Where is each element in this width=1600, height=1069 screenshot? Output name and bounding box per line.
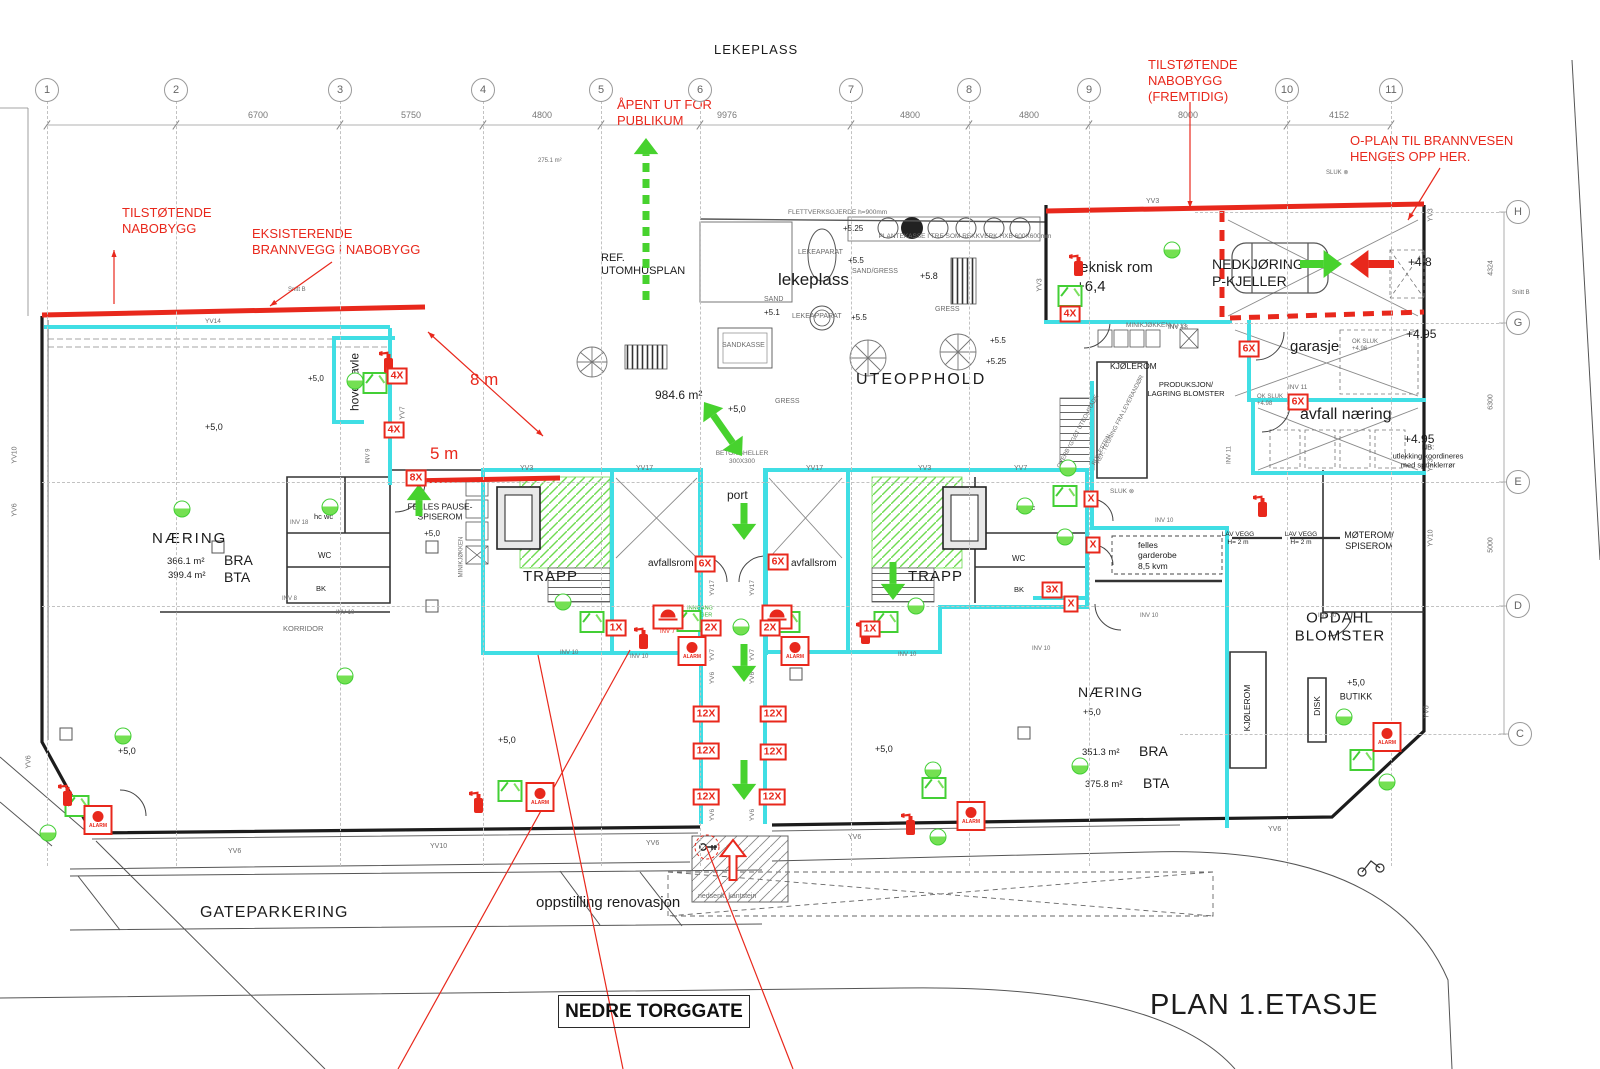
emergency-light-icon [115,728,132,745]
fire-equipment-count-marker: X [1083,491,1098,508]
fire-equipment-count-marker: 1X [606,620,627,637]
fire-equipment-count-marker: 6X [1288,394,1309,411]
emergency-light-icon [1336,709,1353,726]
fire-equipment-count-marker: 12X [693,789,720,806]
fire-equipment-count-marker: 12X [759,789,786,806]
grid-bubble-9: 9 [1077,78,1101,102]
grid-bubble-7: 7 [839,78,863,102]
grid-bubble-E: E [1506,470,1530,494]
exit-sign-icon [363,372,388,394]
fire-equipment-count-marker: 8X [406,470,427,487]
fire-alarm-icon: ALARM [781,636,810,666]
grid-bubble-1: 1 [35,78,59,102]
emergency-light-icon [1164,242,1181,259]
grid-bubble-3: 3 [328,78,352,102]
emergency-light-icon [555,594,572,611]
emergency-light-icon [174,501,191,518]
emergency-light-icon [733,619,750,636]
exit-sign-icon [1053,485,1078,507]
fire-alarm-icon: ALARM [84,805,113,835]
fire-equipment-count-marker: 6X [768,554,789,571]
emergency-light-icon [1072,758,1089,775]
fire-equipment-count-marker: X [1063,596,1078,613]
fire-equipment-count-marker: X [1085,537,1100,554]
fire-equipment-count-marker: 4X [384,422,405,439]
grid-bubble-5: 5 [589,78,613,102]
grid-bubble-11: 11 [1379,78,1403,102]
emergency-light-icon [337,668,354,685]
fire-equipment-count-marker: 12X [693,743,720,760]
fire-equipment-count-marker: 6X [1239,341,1260,358]
fire-equipment-count-marker: 4X [1060,306,1081,323]
grid-bubble-C: C [1508,722,1532,746]
fire-alarm-icon: ALARM [957,801,986,831]
grid-bubble-H: H [1506,200,1530,224]
exit-sign-icon [1350,749,1375,771]
street-name-box: NEDRE TORGGATE [558,995,750,1028]
emergency-light-icon [1379,774,1396,791]
emergency-light-icon [322,499,339,516]
fire-alarm-icon: ALARM [1373,722,1402,752]
fire-equipment-count-marker: 3X [1042,582,1063,599]
grid-bubble-10: 10 [1275,78,1299,102]
fire-equipment-count-marker: 1X [860,621,881,638]
emergency-light-icon [1060,460,1077,477]
street-name: NEDRE TORGGATE [565,1001,743,1023]
fire-equipment-count-marker: 2X [760,620,781,637]
emergency-light-icon [40,825,57,842]
grid-bubble-6: 6 [688,78,712,102]
annotation-arrows [0,0,1600,1069]
emergency-light-icon [925,762,942,779]
fire-equipment-count-marker: 12X [760,744,787,761]
exit-sign-icon [922,777,947,799]
fire-equipment-count-marker: 4X [387,368,408,385]
emergency-light-icon [1017,498,1034,515]
exit-sign-icon [1058,285,1083,307]
plan-title: PLAN 1.ETASJE [1150,988,1378,1023]
grid-bubble-D: D [1506,594,1530,618]
emergency-light-icon [347,373,364,390]
grid-bubble-2: 2 [164,78,188,102]
fire-equipment-count-marker: 6X [695,556,716,573]
doorbell-icon [653,605,684,630]
emergency-light-icon [1057,529,1074,546]
fire-equipment-count-marker: 2X [701,620,722,637]
fire-alarm-icon: ALARM [678,636,707,666]
fire-alarm-icon: ALARM [526,782,555,812]
grid-bubble-8: 8 [957,78,981,102]
grid-bubble-G: G [1506,311,1530,335]
exit-sign-icon [498,780,523,802]
grid-bubble-4: 4 [471,78,495,102]
emergency-light-icon [930,829,947,846]
fire-equipment-count-marker: 12X [760,706,787,723]
fire-equipment-count-marker: 12X [693,706,720,723]
exit-sign-icon [580,611,605,633]
emergency-light-icon [908,598,925,615]
floor-plan: TILSTØTENDE NABOBYGGEKSISTERENDE BRANNVE… [0,0,1600,1069]
